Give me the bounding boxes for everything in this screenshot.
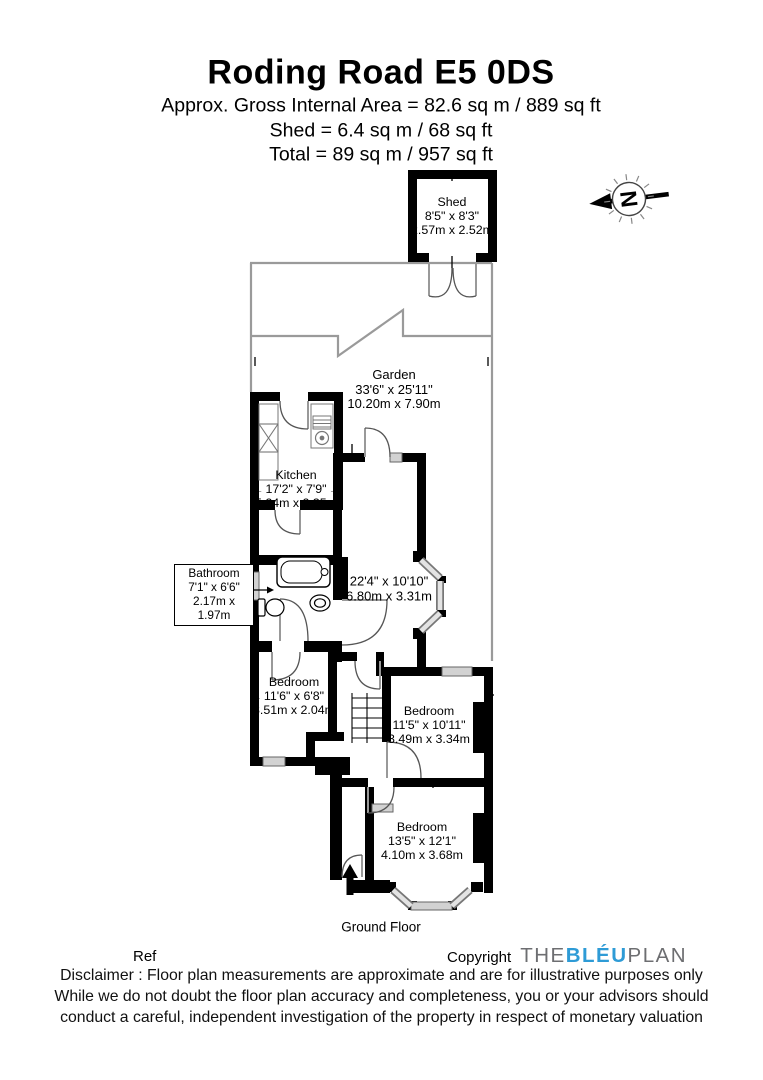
ref-label: Ref: [133, 948, 156, 965]
hob-icon: [259, 424, 278, 452]
logo-part-the: THE: [520, 944, 566, 967]
basin-icon: [310, 595, 330, 611]
bathroom-callout: Bathroom 7'1" x 6'6" 2.17m x 1.97m: [174, 564, 254, 626]
room-label-bedroom-left: Bedroom 11'6" x 6'8" 3.51m x 2.04m: [252, 676, 335, 718]
room-dim-metric: 10.20m x 7.90m: [347, 397, 440, 412]
room-label-garden: Garden 33'6" x 25'11" 10.20m x 7.90m: [347, 368, 440, 412]
logo-part-plan: PLAN: [628, 944, 688, 967]
reception-window: [390, 453, 402, 462]
room-dim-metric: 2.57m x 2.52m: [411, 224, 493, 238]
room-name: Bathroom: [175, 567, 253, 581]
room-dim-imperial: 11'5" x 10'11": [388, 719, 470, 733]
compass-north-letter: N: [615, 189, 643, 209]
copyright-row: Copyright THEBLÉUPLAN: [447, 944, 687, 968]
staircase: [352, 693, 382, 743]
toilet-icon: [258, 599, 284, 616]
room-dim-metric: 4.10m x 3.68m: [381, 849, 463, 863]
room-label-bedroom-middle: Bedroom 11'5" x 10'11" 3.49m x 3.34m: [388, 705, 470, 747]
room-dim-imperial: 17'2" x 7'9": [254, 483, 338, 497]
room-dim-imperial: 11'6" x 6'8": [252, 690, 335, 704]
room-name: Bedroom: [381, 821, 463, 835]
disclaimer-line-1: Disclaimer : Floor plan measurements are…: [0, 966, 763, 987]
thebleuplan-logo: THEBLÉUPLAN: [520, 944, 687, 968]
room-label-bedroom-front: Bedroom 13'5" x 12'1" 4.10m x 3.68m: [381, 821, 463, 863]
room-name: Shed: [411, 196, 493, 210]
disclaimer: Disclaimer : Floor plan measurements are…: [0, 966, 763, 1029]
middle-bedroom-window: [442, 667, 472, 676]
floor-label: Ground Floor: [341, 920, 421, 935]
room-label-reception: 22'4" x 10'10" 6.80m x 3.31m: [346, 574, 432, 603]
room-dim-imperial: 22'4" x 10'10": [346, 574, 432, 589]
room-name: Bedroom: [388, 705, 470, 719]
room-dim-metric: 2.17m x 1.97m: [175, 595, 253, 623]
room-label-kitchen: Kitchen 17'2" x 7'9" 5.24m x 2.35m: [254, 469, 338, 511]
room-name: Kitchen: [254, 469, 338, 483]
room-dim-imperial: 7'1" x 6'6": [175, 581, 253, 595]
break-line: [250, 310, 492, 356]
room-dim-imperial: 13'5" x 12'1": [381, 835, 463, 849]
sink-icon: [316, 432, 329, 445]
floor-plan-svg: N: [0, 0, 763, 1080]
room-name: Bedroom: [252, 676, 335, 690]
logo-part-bleu: BLÉU: [566, 944, 628, 967]
room-dim-metric: 3.51m x 2.04m: [252, 704, 335, 718]
room-dim-imperial: 33'6" x 25'11": [347, 383, 440, 398]
room-label-shed: Shed 8'5" x 8'3" 2.57m x 2.52m: [411, 196, 493, 238]
copyright-label: Copyright: [447, 949, 511, 966]
disclaimer-line-3: conduct a careful, independent investiga…: [0, 1008, 763, 1029]
front-bay-window: [411, 902, 452, 910]
disclaimer-line-2: While we do not doubt the floor plan acc…: [0, 987, 763, 1008]
left-bedroom-window: [263, 757, 285, 766]
compass-rose: N: [586, 169, 671, 228]
floor-plan-page: Roding Road E5 0DS Approx. Gross Interna…: [0, 0, 763, 1080]
room-dim-metric: 3.49m x 3.34m: [388, 733, 470, 747]
room-dim-imperial: 8'5" x 8'3": [411, 210, 493, 224]
room-dim-metric: 6.80m x 3.31m: [346, 589, 432, 604]
room-dim-metric: 5.24m x 2.35m: [254, 497, 338, 511]
room-name: Garden: [347, 368, 440, 383]
bathtub-icon: [277, 557, 330, 587]
